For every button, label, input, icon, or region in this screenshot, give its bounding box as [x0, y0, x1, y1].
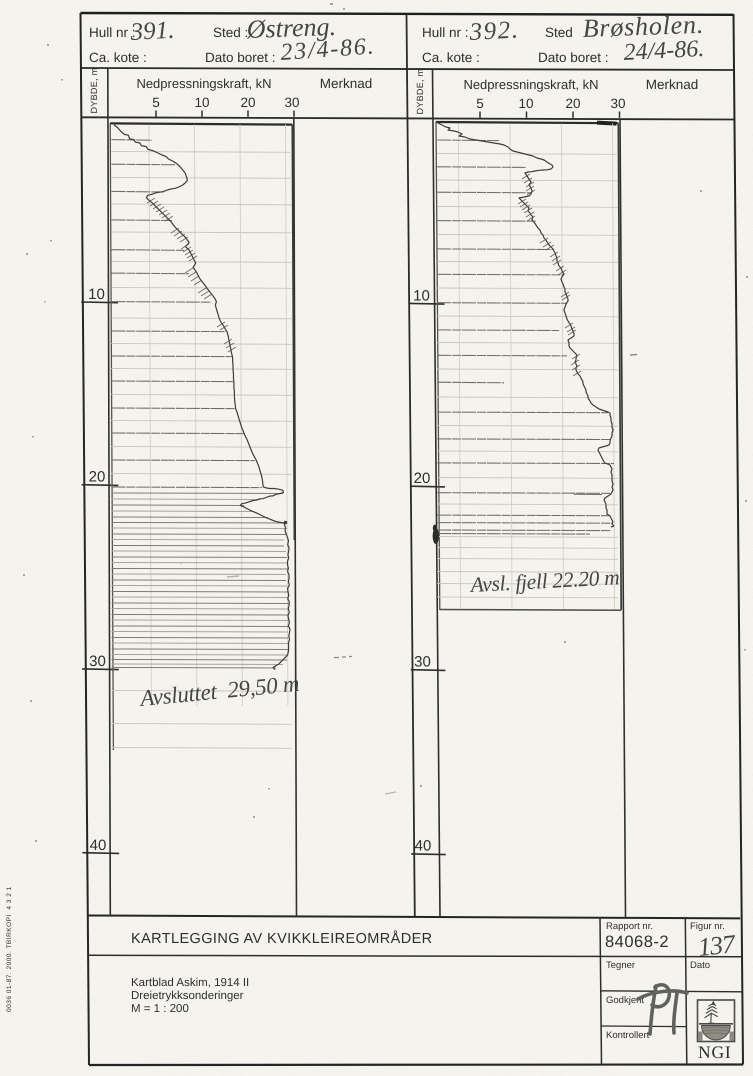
svg-text:NGI: NGI [698, 1042, 732, 1062]
svg-text:M = 1 : 200: M = 1 : 200 [131, 1003, 189, 1015]
svg-text:Merknad: Merknad [646, 77, 699, 92]
svg-text:Tegner: Tegner [606, 960, 635, 971]
svg-text:Hull nr :: Hull nr : [89, 25, 136, 40]
svg-text:DYBDE, m: DYBDE, m [415, 69, 425, 115]
svg-text:0036 01-87. 2000. TBIRKOPI 4: 0036 01-87. 2000. TBIRKOPI 4 3 2 1 [6, 886, 13, 1012]
svg-text:Ca. kote :: Ca. kote : [422, 50, 480, 65]
svg-text:20: 20 [89, 469, 106, 486]
svg-text:24/4-86.: 24/4-86. [623, 36, 705, 66]
svg-text:20: 20 [565, 96, 580, 111]
svg-text:Sted: Sted [545, 25, 573, 40]
svg-text:DYBDE, m: DYBDE, m [89, 68, 99, 114]
svg-text:40: 40 [415, 838, 432, 855]
svg-text:10: 10 [518, 96, 533, 111]
svg-text:Nedpressningskraft, kN: Nedpressningskraft, kN [136, 76, 271, 91]
svg-text:Merknad: Merknad [320, 76, 373, 91]
svg-text:30: 30 [610, 96, 625, 111]
svg-text:Dato boret :: Dato boret : [538, 50, 609, 65]
svg-text:Nedpressningskraft, kN: Nedpressningskraft, kN [463, 77, 598, 92]
svg-text:Dreietrykksonderinger: Dreietrykksonderinger [131, 990, 244, 1002]
svg-text:392.: 392. [468, 16, 520, 46]
svg-text:Sted :: Sted : [213, 25, 248, 40]
svg-text:10: 10 [194, 95, 209, 110]
svg-text:391.: 391. [129, 17, 175, 46]
svg-text:Dato: Dato [690, 960, 710, 971]
svg-text:30: 30 [89, 653, 106, 670]
svg-text:20: 20 [240, 95, 255, 110]
svg-text:20: 20 [414, 470, 431, 487]
svg-text:84068-2: 84068-2 [605, 933, 669, 951]
svg-text:5: 5 [476, 96, 484, 111]
svg-text:30: 30 [284, 95, 299, 110]
svg-text:5: 5 [152, 95, 160, 110]
svg-text:10: 10 [88, 286, 105, 303]
svg-text:Ca. kote :: Ca. kote : [89, 50, 147, 65]
svg-text:Kontrollert: Kontrollert [606, 1030, 650, 1041]
svg-text:Dato boret :: Dato boret : [205, 50, 276, 65]
svg-text:KARTLEGGING AV KVIKKLEIREOMRÅD: KARTLEGGING AV KVIKKLEIREOMRÅDER [131, 930, 433, 947]
svg-text:Kartblad Askim, 1914 II: Kartblad Askim, 1914 II [131, 977, 249, 989]
svg-text:Hull nr :: Hull nr : [422, 25, 469, 40]
svg-text:30: 30 [414, 654, 431, 671]
svg-text:137: 137 [697, 929, 738, 962]
svg-text:40: 40 [90, 837, 107, 854]
svg-text:10: 10 [413, 288, 430, 305]
svg-text:Rapport nr.: Rapport nr. [606, 921, 653, 932]
